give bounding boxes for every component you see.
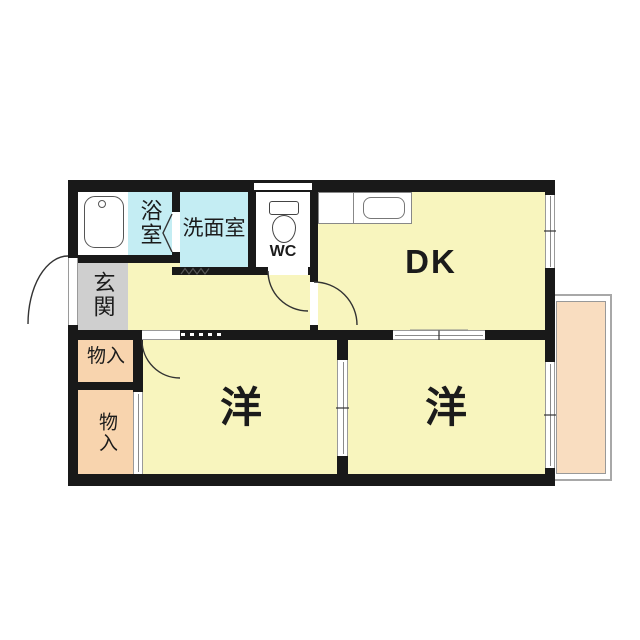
room-label-bathroom: 浴室	[136, 192, 164, 254]
dashed-line	[181, 333, 221, 336]
door-dk	[310, 282, 318, 325]
door-glass	[138, 394, 139, 473]
room-label-western-left: 洋	[181, 384, 301, 432]
door-western-room-left	[142, 330, 180, 340]
room-label-washroom: 洗面室	[178, 215, 250, 243]
door-swing-arc-entrance	[28, 256, 68, 324]
sliding-door-balcony	[545, 362, 555, 468]
room-label-storage-upper: 物入	[78, 345, 134, 369]
room-label-dk: DK	[361, 242, 501, 282]
wall-bottom	[68, 474, 555, 486]
room-label-entrance: 玄関	[88, 262, 118, 328]
bathtub-icon	[84, 196, 124, 248]
sliding-door-storage-lower	[133, 392, 143, 474]
faucet-icon	[98, 200, 106, 208]
wall-bathroom-bottom	[68, 255, 180, 263]
floor-plan: DK 浴室 洗面室 WC 玄関 物入 物入 洋 洋	[0, 0, 640, 640]
window-above-wc	[254, 183, 312, 190]
sliding-door-western-room-right	[393, 330, 485, 340]
entrance-door	[68, 258, 78, 325]
sliding-door-between-western-rooms	[337, 360, 348, 456]
door-wc	[268, 267, 308, 275]
kitchen-sink-icon	[363, 197, 405, 219]
wall-storage-right	[133, 332, 143, 392]
counter-divider	[353, 193, 354, 223]
window-glass	[550, 196, 551, 266]
room-label-storage-lower: 物入	[90, 400, 122, 466]
room-label-western-right: 洋	[386, 384, 506, 432]
door-glass	[395, 335, 483, 336]
window-dk	[545, 195, 555, 268]
balcony	[556, 301, 606, 474]
wall-dashed-segment	[180, 330, 222, 340]
room-label-wc: WC	[256, 242, 310, 262]
window-glass	[550, 364, 551, 466]
toilet-icon	[269, 201, 299, 215]
door-glass	[343, 362, 344, 454]
kitchen-counter	[318, 192, 412, 224]
